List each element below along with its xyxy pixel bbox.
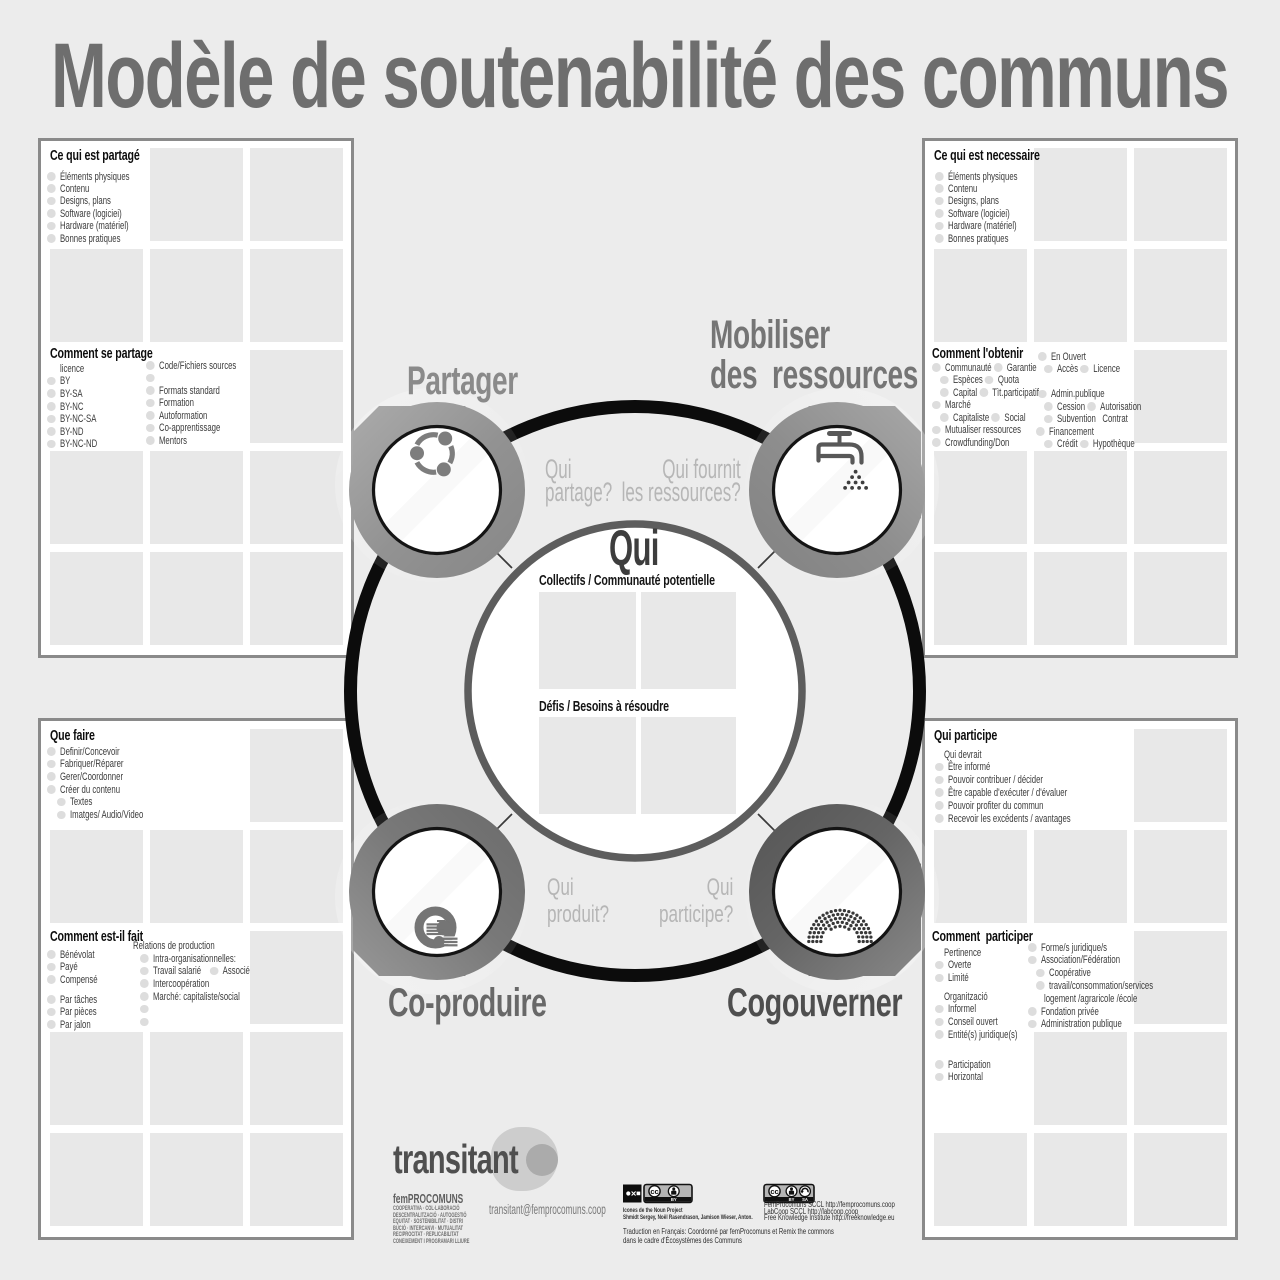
svg-text:BY: BY [671, 1197, 677, 1202]
svg-text:cc: cc [650, 1187, 658, 1196]
svg-text:cc: cc [770, 1187, 778, 1196]
